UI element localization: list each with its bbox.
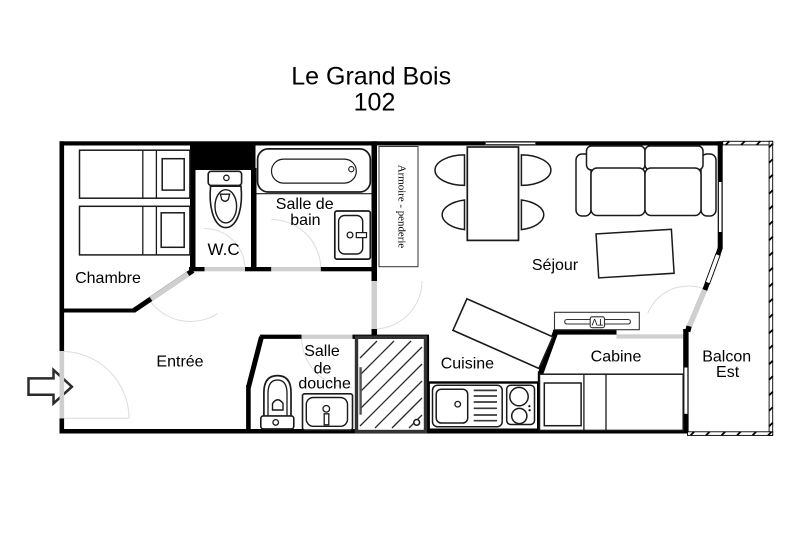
svg-text:Est: Est <box>716 364 740 381</box>
svg-text:Cabine: Cabine <box>591 349 642 366</box>
svg-text:Séjour: Séjour <box>532 257 579 274</box>
svg-text:douche: douche <box>298 375 351 392</box>
svg-text:Salle: Salle <box>304 343 340 360</box>
svg-text:W.C: W.C <box>208 240 240 259</box>
svg-text:bain: bain <box>290 212 320 229</box>
svg-text:102: 102 <box>354 88 396 116</box>
svg-text:Le Grand Bois: Le Grand Bois <box>291 63 451 91</box>
svg-text:Salle de: Salle de <box>276 196 334 213</box>
svg-text:TV: TV <box>592 317 604 327</box>
svg-text:Chambre: Chambre <box>75 270 141 287</box>
svg-text:Armoire - penderie: Armoire - penderie <box>396 165 408 249</box>
svg-text:Balcon: Balcon <box>702 348 751 365</box>
svg-text:Cuisine: Cuisine <box>441 356 494 373</box>
svg-text:Entrée: Entrée <box>156 354 203 371</box>
